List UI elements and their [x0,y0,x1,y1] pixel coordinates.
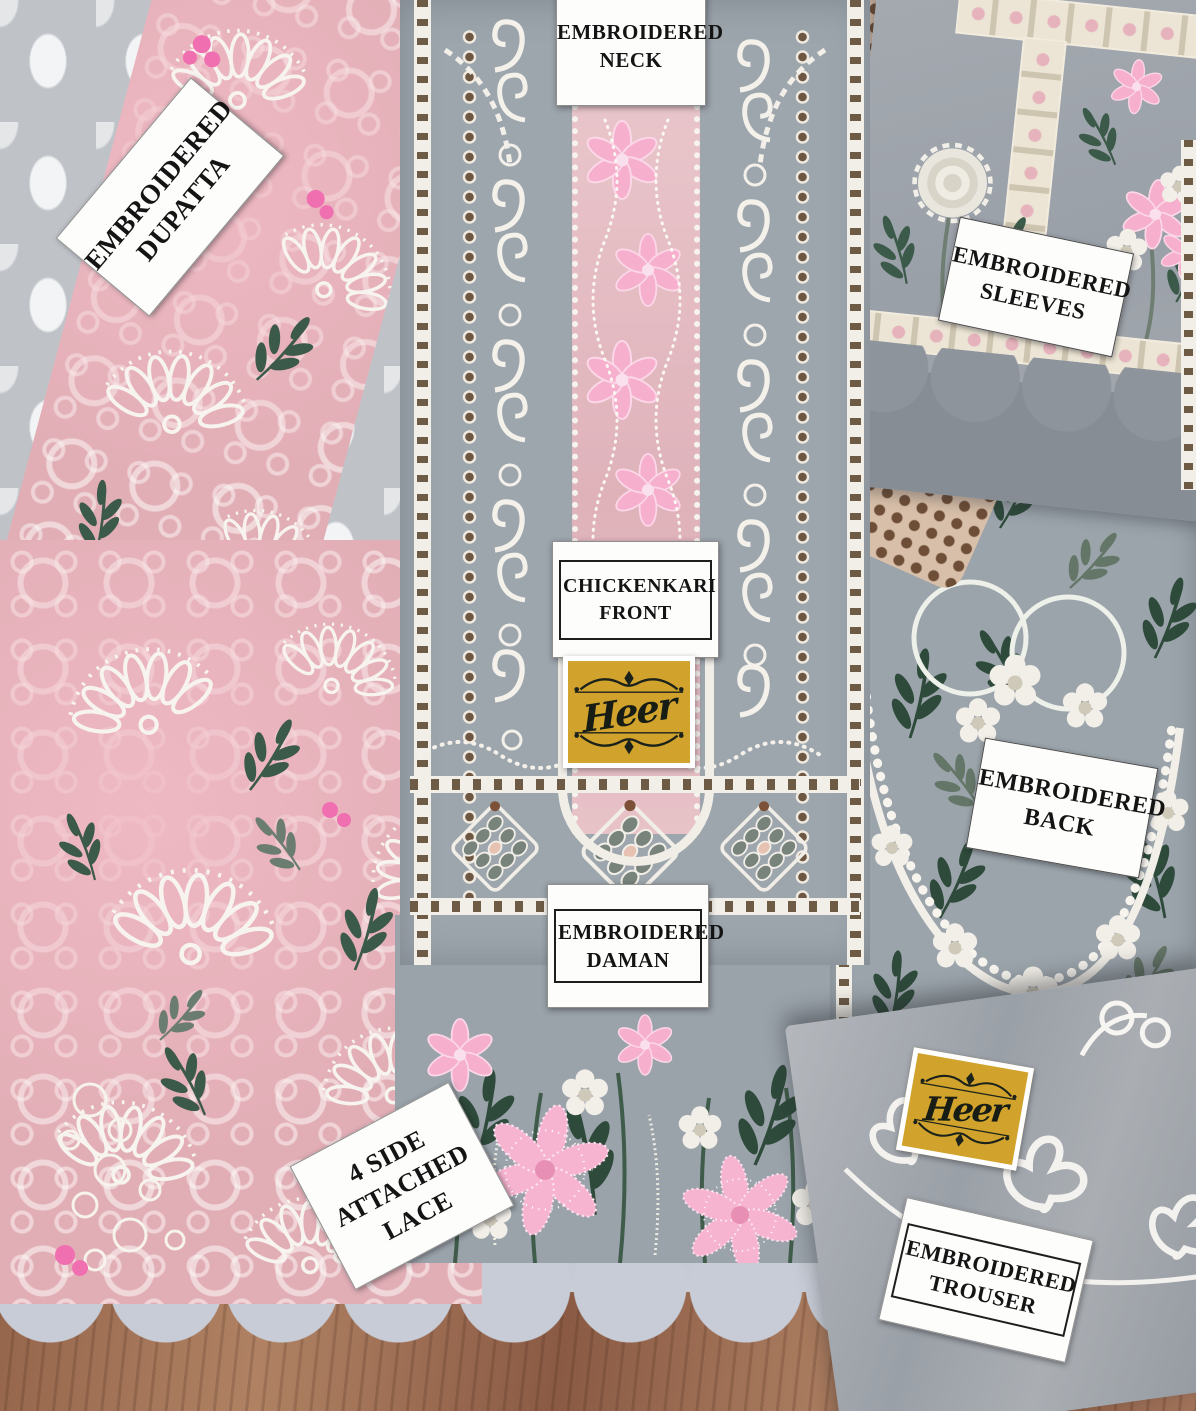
label-text-group: EMBROIDERED NECK [557,21,705,71]
label-text-group: EMBROIDERED DAMAN [554,909,702,983]
label-text-group: EMBROIDERED SLEEVES [944,242,1127,332]
label-line: CHICKENKARI [563,576,708,597]
label-text-group: CHICKENKARI FRONT [559,560,712,640]
label-line: DAMAN [558,949,698,971]
label-line: NECK [557,49,705,71]
label-chickenkari-front: CHICKENKARI FRONT [552,541,719,658]
flourish-ornament-bottom [573,731,685,757]
label-embroidered-neck: EMBROIDERED NECK [556,0,706,106]
label-line: EMBROIDERED [557,21,705,43]
label-line: EMBROIDERED [558,921,698,943]
heer-brand-badge: Heer [896,1047,1034,1171]
label-embroidered-daman: EMBROIDERED DAMAN [547,884,709,1008]
product-photo: EMBROIDERED DUPATTA EMBROIDERED NECK EMB… [0,0,1196,1411]
label-text-group: EMBROIDERED BACK [971,765,1152,851]
eyelet-ladder-right-edge [1181,140,1196,490]
label-line: FRONT [563,603,708,624]
heer-brand-badge: Heer [563,656,695,768]
eyelet-ladder-horizontal-1 [410,776,860,793]
label-text-group: EMBROIDERED TROUSER [891,1223,1082,1337]
chickenkari-front-fabric [400,0,870,965]
